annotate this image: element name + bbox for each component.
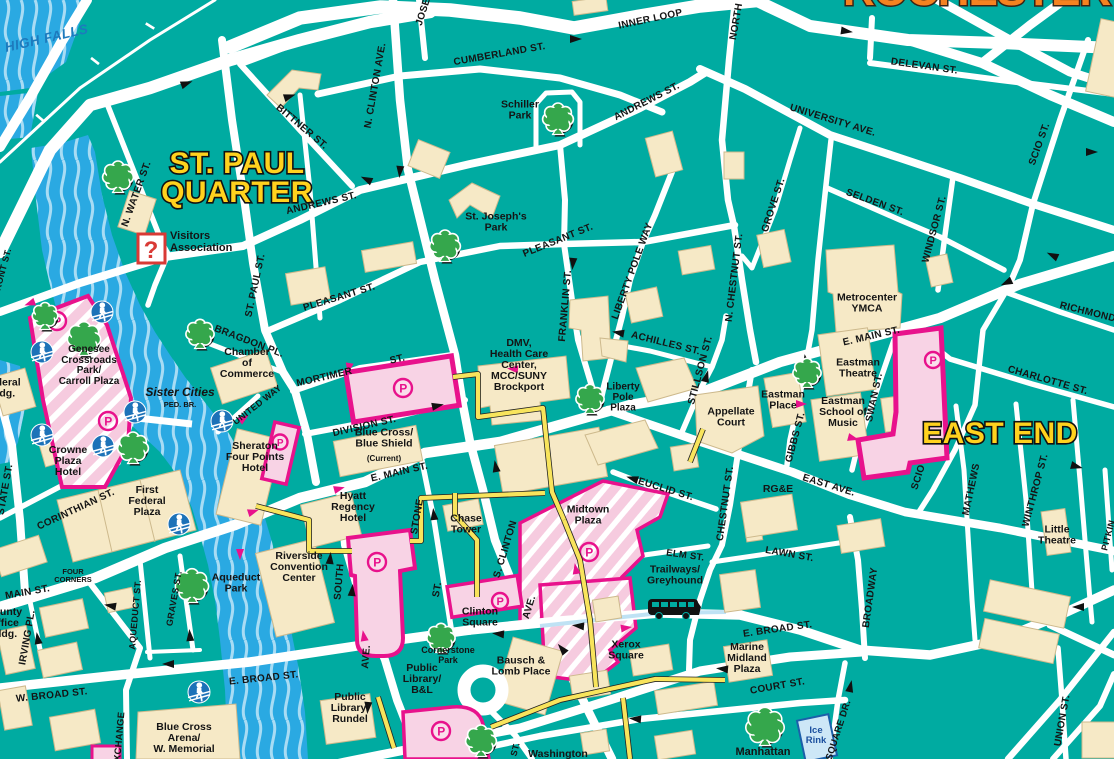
svg-text:Sister Cities: Sister Cities: [145, 385, 215, 399]
svg-text:P: P: [399, 382, 407, 396]
svg-text:?: ?: [144, 237, 159, 264]
svg-text:XeroxSquare: XeroxSquare: [608, 639, 644, 662]
svg-text:Blue Cross/Blue Shield: Blue Cross/Blue Shield: [355, 427, 413, 450]
svg-text:ChaseTower: ChaseTower: [450, 513, 482, 536]
svg-text:QUARTER: QUARTER: [161, 176, 313, 209]
svg-text:P: P: [930, 355, 937, 367]
svg-text:Washington: Washington: [528, 748, 588, 759]
svg-text:AVE.: AVE.: [360, 644, 373, 669]
svg-text:PED. BR.: PED. BR.: [164, 400, 197, 409]
svg-text:P: P: [373, 556, 381, 570]
svg-text:P: P: [104, 415, 112, 429]
svg-text:Trailways/Greyhound: Trailways/Greyhound: [647, 564, 703, 587]
svg-text:P: P: [585, 546, 593, 560]
svg-text:EAST END: EAST END: [922, 417, 1078, 450]
svg-text:RG&E: RG&E: [763, 483, 793, 495]
svg-text:(Current): (Current): [367, 454, 402, 463]
svg-text:Bausch &Lomb Place: Bausch &Lomb Place: [492, 655, 551, 678]
svg-text:P: P: [437, 725, 445, 739]
svg-text:ROCHESTER: ROCHESTER: [843, 0, 1110, 15]
svg-text:PublicLibrary/Rundel: PublicLibrary/Rundel: [331, 691, 370, 725]
svg-text:P: P: [277, 438, 284, 449]
svg-text:Manhattan: Manhattan: [736, 746, 791, 758]
svg-text:EastmanTheatre: EastmanTheatre: [836, 357, 880, 380]
svg-text:ClintonSquare: ClintonSquare: [462, 606, 498, 629]
